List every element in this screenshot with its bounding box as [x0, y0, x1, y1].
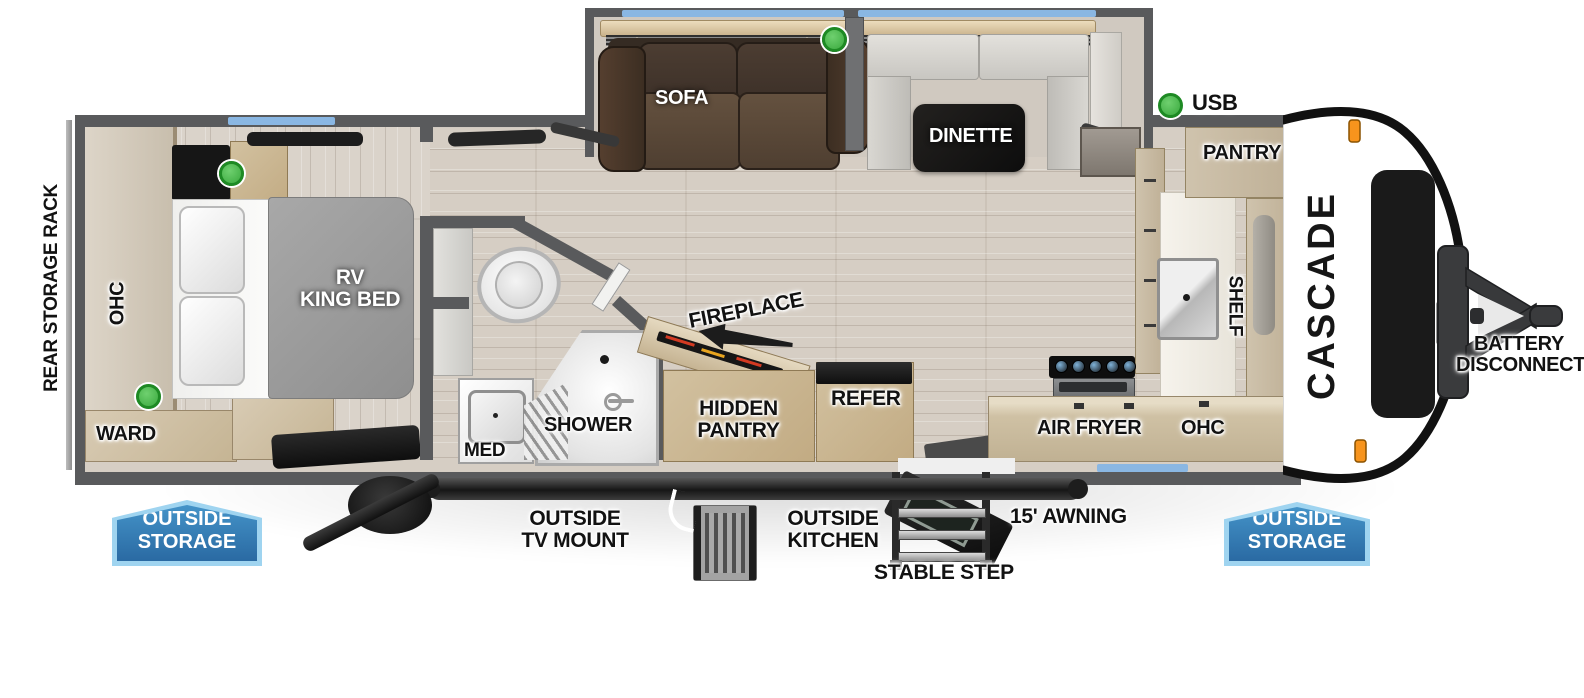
bed-pillow	[179, 296, 245, 386]
bedroom-tv	[247, 132, 363, 146]
kitchen-sink	[1157, 258, 1219, 340]
usb-dot-legend	[1158, 93, 1183, 118]
dinette	[865, 30, 1093, 172]
bed-label: RVKING BED	[300, 267, 400, 311]
bedroom-window	[228, 117, 335, 125]
slide-window-right	[858, 10, 1096, 17]
refer	[816, 362, 914, 462]
outside-storage-badge-right-text: OUTSIDE STORAGE	[1229, 507, 1365, 561]
refer-label: REFER	[831, 388, 901, 410]
bedroom-bath-wall	[420, 216, 433, 460]
dinette-label: DINETTE	[929, 126, 1012, 147]
pantry-label: PANTRY	[1203, 143, 1281, 164]
slide-window-left	[622, 10, 844, 17]
bedroom-wall-stub	[420, 127, 433, 142]
stable-step-label: STABLE STEP	[874, 562, 1014, 584]
usb-dot-slide	[822, 27, 847, 52]
usb-label: USB	[1192, 91, 1238, 114]
sofa-label: SOFA	[655, 88, 708, 109]
rear-storage-rack-label-wrap: REAR STORAGE RACK	[0, 188, 152, 388]
kitchen-ohc-label: OHC	[1181, 418, 1225, 439]
outside-tv-mount-label: OUTSIDETV MOUNT	[505, 508, 645, 552]
air-fryer-label: AIR FRYER	[1037, 418, 1141, 439]
ward-label: WARD	[96, 424, 156, 445]
rear-storage-rack-label: REAR STORAGE RACK	[42, 184, 62, 392]
floorplan-canvas: SOFA DINETTE USB OHC WARD RVKING BED	[0, 0, 1584, 698]
shelf-label: SHELF	[1224, 276, 1244, 337]
slide-partition-wall	[845, 17, 864, 151]
outside-storage-badge-left-text: OUTSIDE STORAGE	[117, 505, 257, 561]
usb-dot-bedroom-top	[219, 161, 244, 186]
outside-kitchen-grill	[693, 505, 757, 581]
kitchen-bottom-window	[1097, 464, 1188, 472]
kitchen-top-cabinet	[1080, 127, 1141, 177]
outside-kitchen-label: OUTSIDEKITCHEN	[763, 508, 903, 552]
med-label: MED	[464, 441, 505, 461]
med-sink	[468, 390, 526, 444]
battery-disconnect-label: BATTERY DISCONNECT	[1456, 334, 1582, 376]
hidden-pantry-label: HIDDENPANTRY	[676, 398, 801, 442]
awning-label: 15' AWNING	[1010, 506, 1127, 528]
bath-wall-stub	[433, 297, 469, 309]
shower-label: SHOWER	[544, 415, 632, 436]
hitch-assembly	[1436, 238, 1566, 413]
awning-tube	[428, 478, 1082, 500]
bed-pillow	[179, 206, 245, 294]
